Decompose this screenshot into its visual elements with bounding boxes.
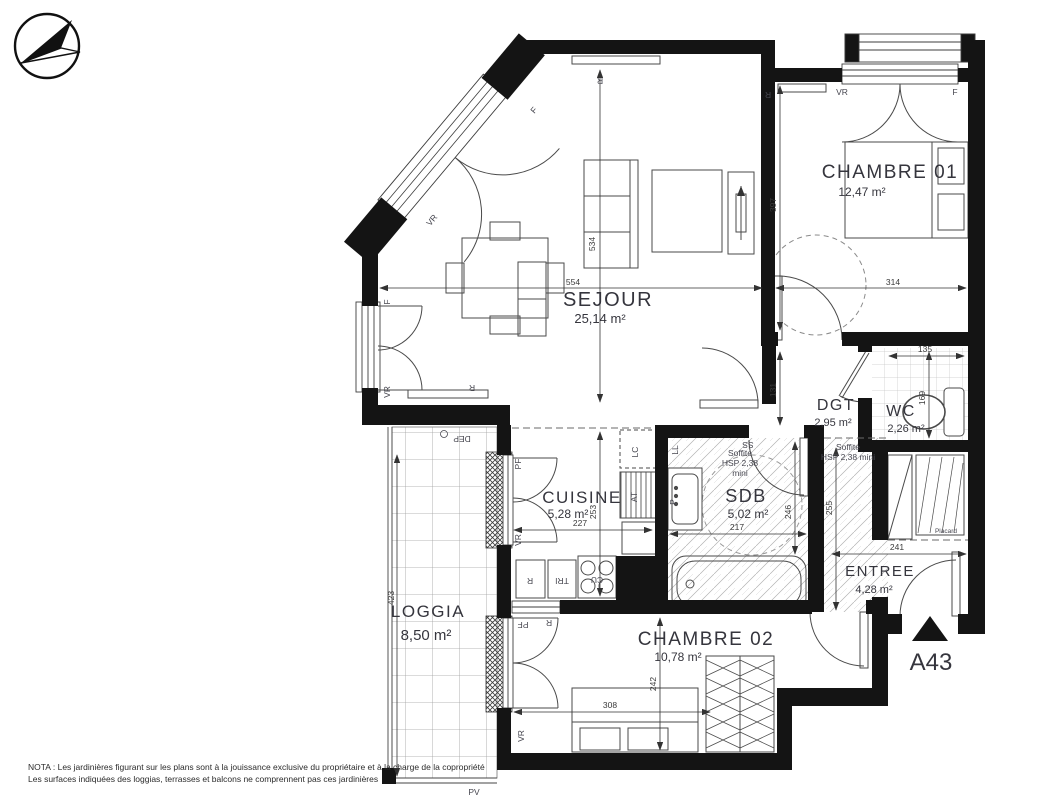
- label-f-chambre01: F: [952, 87, 957, 97]
- label-f-sejour-left: F: [382, 299, 392, 304]
- door-chambre02-window: [513, 618, 558, 708]
- label-p: P: [668, 499, 678, 505]
- label-tri: TRI: [555, 576, 569, 586]
- room-name-chambre01: CHAMBRE 01: [822, 162, 958, 183]
- label-pf-chambre02: PF: [518, 620, 529, 630]
- closet-entree-icon: [888, 455, 964, 539]
- entrance-marker: A43: [910, 616, 953, 676]
- soffite-dgt-l1: Soffite: [836, 442, 860, 452]
- room-area-chambre02: 10,78 m²: [654, 650, 701, 664]
- dim-wc-w: 135: [918, 344, 932, 354]
- room-name-entree: ENTREE: [845, 563, 915, 580]
- dim-sejour-w: 554: [566, 277, 580, 287]
- label-r-chambre01: R: [765, 90, 771, 100]
- door-chambre02: [810, 612, 868, 668]
- door-chambre01: [774, 276, 842, 340]
- room-area-sdb: 5,02 m²: [728, 507, 769, 521]
- room-name-dgt: DGT: [817, 397, 855, 414]
- nota-line2: Les surfaces indiquées des loggias, terr…: [28, 774, 378, 784]
- dim-sejour-h: 534: [587, 237, 597, 251]
- label-lc: LC: [630, 447, 640, 458]
- room-name-cuisine: CUISINE: [542, 488, 621, 507]
- label-r-sejour-left: R: [469, 383, 475, 393]
- room-area-chambre01: 12,47 m²: [838, 185, 885, 199]
- room-name-sdb: SDB: [725, 486, 767, 506]
- dim-wc-h: 169: [917, 391, 927, 405]
- door-sejour-dgt: [700, 348, 758, 408]
- door-chambre01-window: [842, 84, 958, 142]
- room-name-chambre02: CHAMBRE 02: [638, 629, 774, 650]
- entrance-arrow-icon: [912, 616, 948, 641]
- window-chambre02: [503, 618, 513, 708]
- room-area-wc: 2,26 m²: [887, 423, 925, 435]
- nota-line1: NOTA : Les jardinières figurant sur les …: [28, 762, 485, 772]
- label-pv: PV: [468, 787, 480, 797]
- label-placard: Placard: [935, 528, 957, 535]
- tv-unit-icon: [728, 172, 754, 254]
- label-r-sejour-top: R: [597, 76, 603, 86]
- floor-plan: 554 314 534 397 131 135 169 227 253 217 …: [0, 0, 1050, 800]
- wardrobe-chambre02-icon: [706, 656, 774, 752]
- soffite-dgt-l2: HSP 2,38 mini: [821, 452, 875, 462]
- dim-entree-h: 255: [824, 501, 834, 515]
- door-entrance-a43: [900, 552, 960, 616]
- label-vr-sejour-left: VR: [382, 386, 392, 398]
- soffite-sdb-l2: HSP 2,38: [722, 458, 759, 468]
- radiator-sejour-top: [572, 56, 660, 64]
- bay-window-group: [343, 33, 599, 309]
- dim-sdb-h: 246: [783, 505, 793, 519]
- label-vr-chambre01: VR: [836, 87, 848, 97]
- dim-chambre02-h: 242: [648, 677, 658, 691]
- window-chambre01-top: [842, 64, 958, 84]
- soffite-sdb-l3: mini: [732, 468, 748, 478]
- bay-glazing: [378, 74, 508, 220]
- door-wc: [839, 351, 869, 402]
- north-arrow-icon: [15, 14, 80, 78]
- room-name-wc: WC: [886, 403, 916, 420]
- label-vr-cuisine: VR: [513, 534, 523, 546]
- label-f-bay: F: [528, 105, 539, 115]
- label-dep: DEP: [453, 434, 471, 444]
- label-vr-bay: VR: [424, 212, 439, 227]
- room-area-entree: 4,28 m²: [855, 584, 893, 596]
- dim-sdb-w: 217: [730, 522, 744, 532]
- label-vr-chambre02: VR: [516, 730, 526, 742]
- dim-entree-w: 241: [890, 542, 904, 552]
- label-r-chambre02: R: [546, 618, 552, 628]
- dim-chambre01-w: 314: [886, 277, 900, 287]
- room-area-cuisine: 5,28 m²: [548, 507, 589, 521]
- room-name-loggia: LOGGIA: [391, 602, 465, 621]
- label-cu: CU: [591, 575, 603, 585]
- window-cuisine: [503, 455, 513, 545]
- dim-chambre02-w: 308: [603, 700, 617, 710]
- room-area-dgt: 2,95 m²: [814, 417, 852, 429]
- room-name-sejour: SEJOUR: [563, 289, 653, 311]
- dim-passage: 131: [768, 383, 778, 397]
- room-area-loggia: 8,50 m²: [401, 627, 452, 644]
- window-sejour-left: [356, 302, 380, 392]
- label-pf-cuisine: PF: [513, 459, 523, 470]
- bed-chambre02-icon: [572, 688, 698, 752]
- washbasin-icon: [668, 468, 702, 530]
- label-ll: LL: [670, 445, 680, 455]
- entrance-label: A43: [910, 649, 953, 676]
- door-sejour-left-window: [378, 306, 422, 390]
- dim-chambre01-h: 397: [768, 198, 778, 212]
- window-chambre02-pf: [512, 601, 560, 613]
- soffite-sdb-l1: Soffite: [728, 448, 752, 458]
- radiator-chambre01: [778, 84, 826, 92]
- label-r-cuisine: R: [527, 576, 533, 586]
- window-bay-top-right: [845, 34, 975, 62]
- coffee-table-icon: [652, 170, 722, 252]
- room-area-sejour: 25,14 m²: [574, 311, 626, 326]
- label-at: AT: [629, 492, 639, 502]
